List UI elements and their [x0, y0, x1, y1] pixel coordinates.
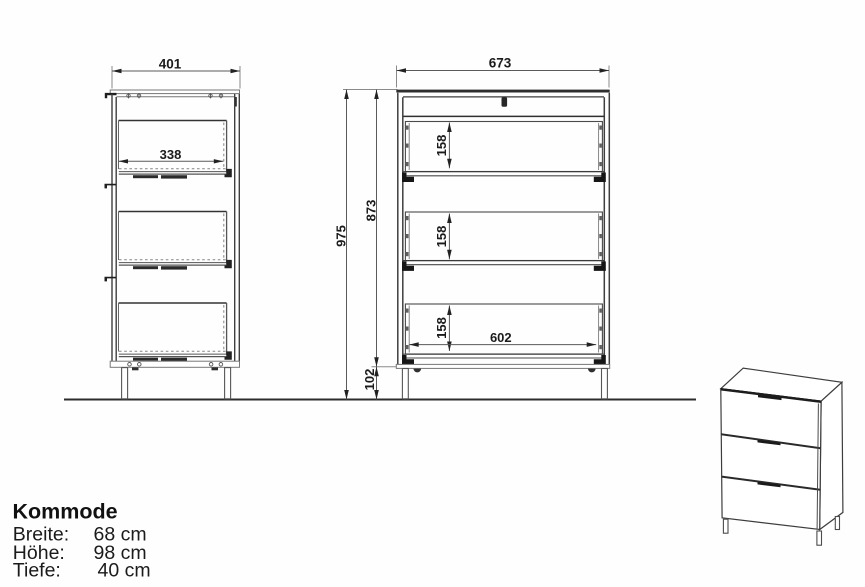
svg-text:158: 158: [434, 226, 449, 248]
svg-text:Tiefe:: Tiefe:: [13, 560, 61, 582]
svg-text:158: 158: [434, 135, 449, 157]
svg-text:158: 158: [434, 317, 449, 339]
svg-text:873: 873: [363, 200, 378, 222]
svg-text:102: 102: [362, 369, 377, 391]
svg-text:40 cm: 40 cm: [98, 560, 151, 582]
svg-text:602: 602: [490, 330, 512, 345]
svg-text:Kommode: Kommode: [13, 500, 118, 524]
svg-text:975: 975: [333, 225, 348, 247]
svg-text:673: 673: [489, 56, 512, 71]
svg-text:338: 338: [160, 147, 182, 162]
svg-text:401: 401: [159, 57, 182, 72]
